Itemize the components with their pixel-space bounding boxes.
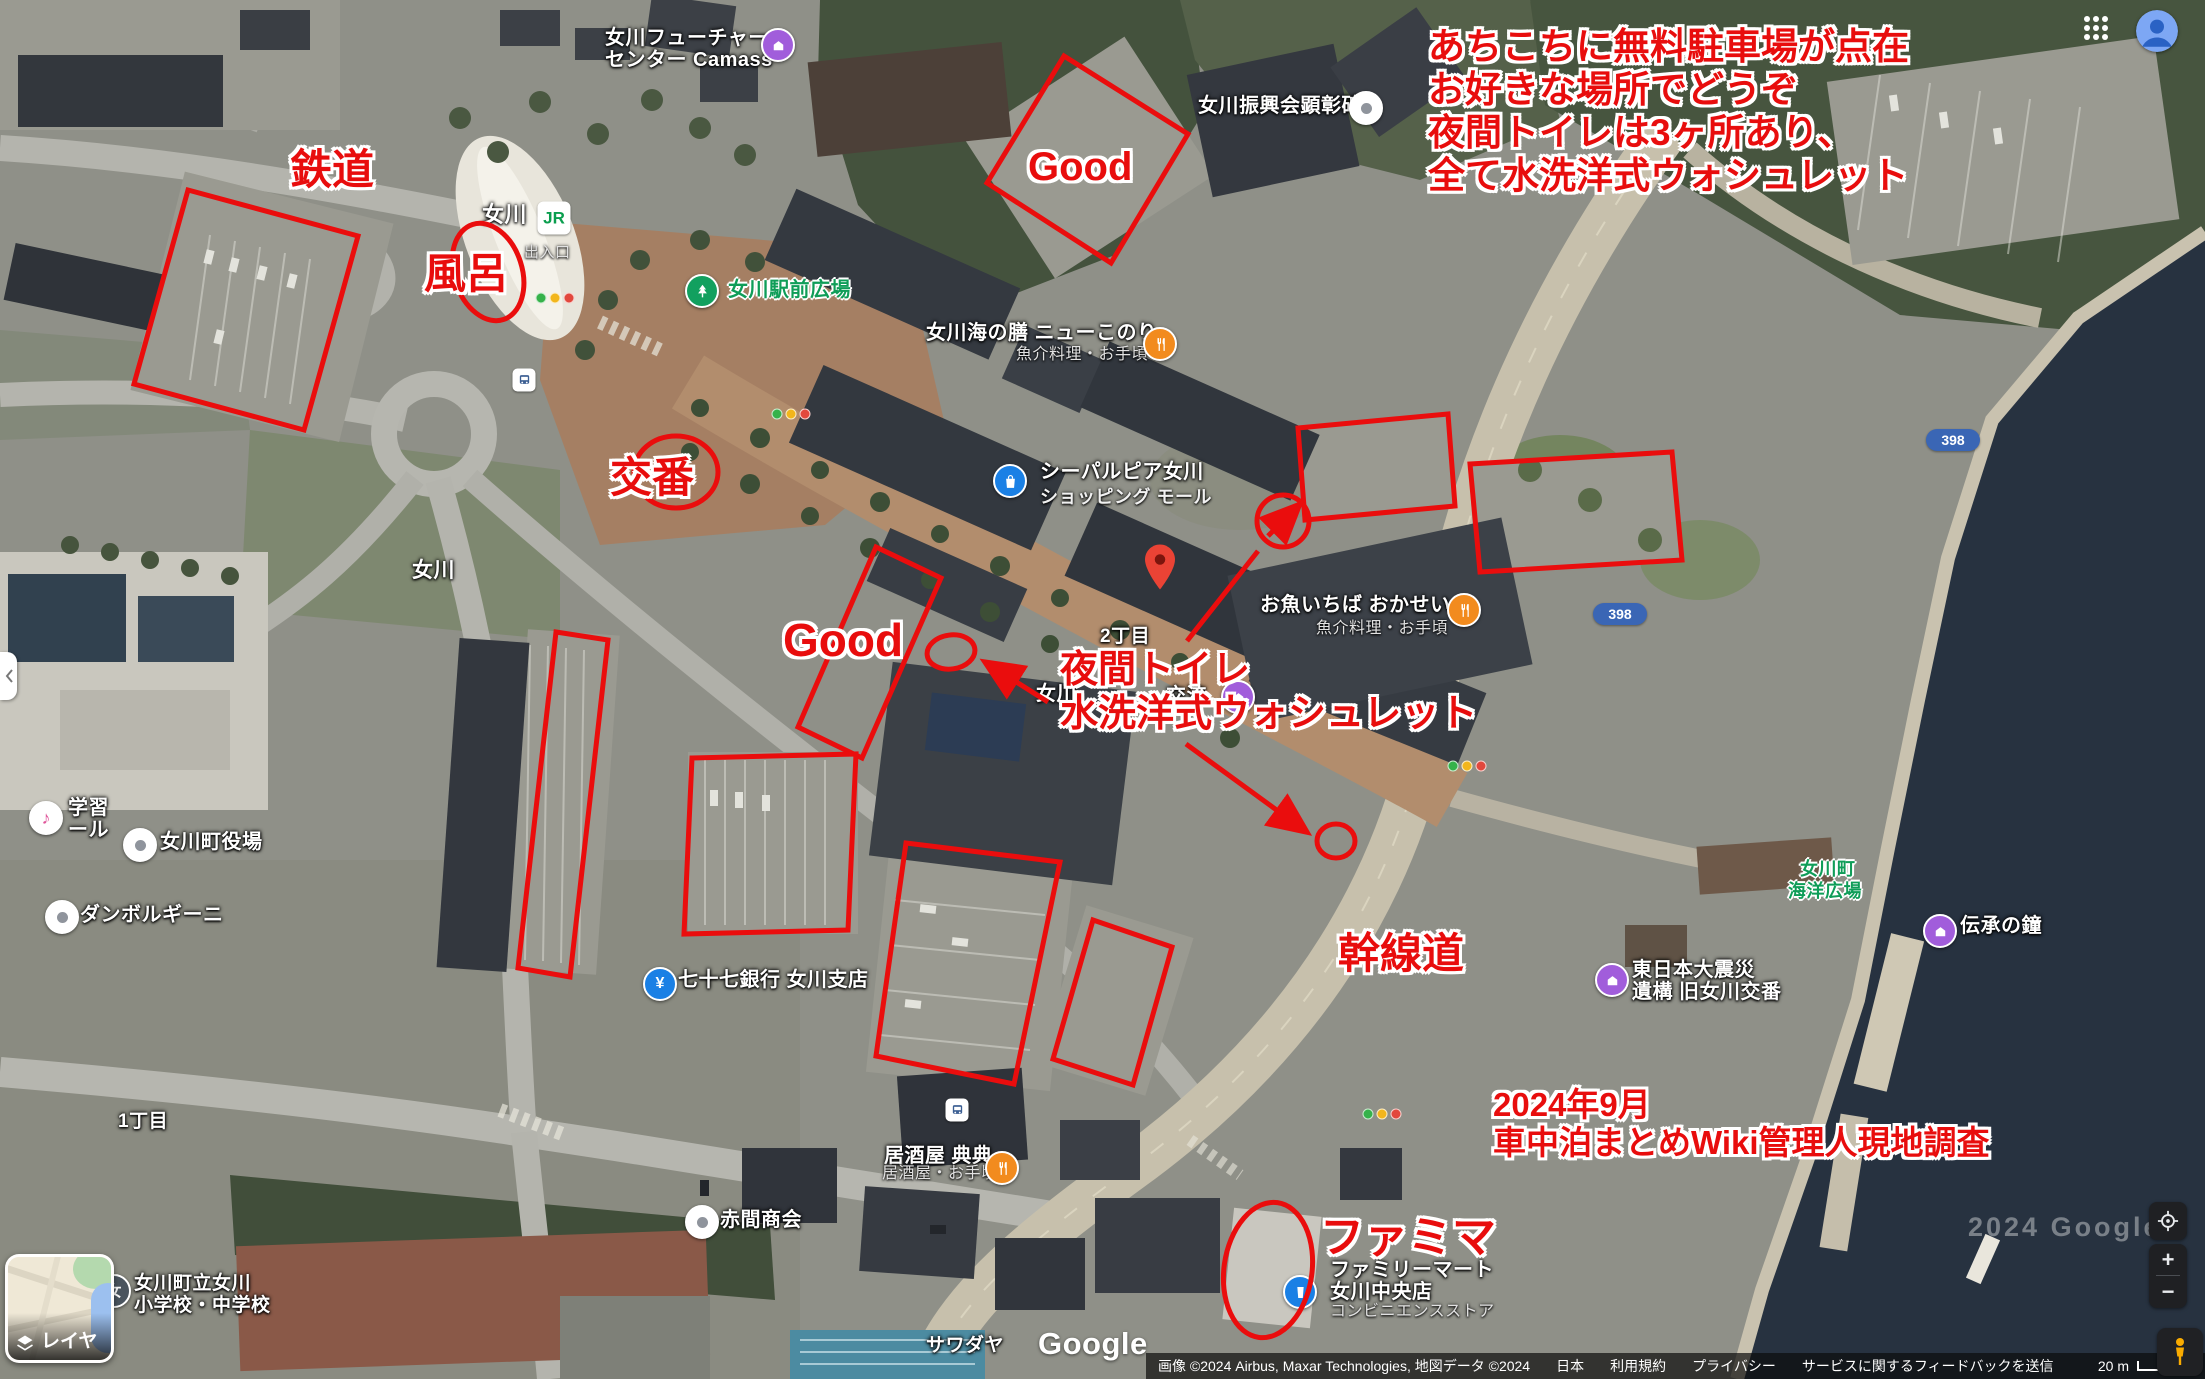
layers-icon	[15, 1333, 35, 1353]
attribution-link-privacy[interactable]: プライバシー	[1692, 1356, 1776, 1376]
red-notes-layer: あちこちに無料駐車場が点在 お好きな場所でどうぞ 夜間トイレは3ヶ所あり、 全て…	[0, 0, 2205, 1379]
side-panel-toggle[interactable]	[0, 652, 17, 700]
account-avatar[interactable]	[2136, 10, 2178, 52]
note-night-toilet: 夜間トイレ 水洗洋式ウォシュレット	[1060, 648, 1477, 736]
pegman-icon	[2168, 1337, 2192, 1367]
note-parking-info: あちこちに無料駐車場が点在 お好きな場所でどうぞ 夜間トイレは3ヶ所あり、 全て…	[1428, 26, 1909, 198]
note-good-1: Good	[1028, 144, 1132, 190]
map-canvas[interactable]: 女川フューチャーセンター Camass女川振興会顕彰碑女川出入口女川駅前広場女川…	[0, 0, 2205, 1379]
attribution-link-terms[interactable]: 利用規約	[1610, 1356, 1666, 1376]
imagery-credit: 画像 ©2024 Airbus, Maxar Technologies, 地図デ…	[1158, 1356, 1530, 1376]
google-logo: Google	[1038, 1326, 1148, 1362]
note-kansendo: 幹線道	[1338, 930, 1464, 979]
note-furo: 風呂	[424, 250, 508, 299]
note-survey: 2024年9月 車中泊まとめWiki管理人現地調査	[1493, 1086, 1990, 1163]
pegman-button[interactable]	[2157, 1328, 2203, 1376]
layers-button[interactable]: レイヤ	[5, 1254, 114, 1363]
layers-label: レイヤ	[41, 1326, 97, 1353]
attribution-bar: 画像 ©2024 Airbus, Maxar Technologies, 地図デ…	[1146, 1353, 2205, 1379]
chevron-left-icon	[4, 668, 14, 684]
note-tetsudo: 鉄道	[290, 146, 374, 195]
zoom-out-button[interactable]: −	[2149, 1276, 2187, 1307]
note-famima: ファミマ	[1320, 1212, 1496, 1263]
note-koban: 交番	[610, 454, 694, 503]
crosshair-icon	[2157, 1210, 2179, 1232]
note-good-2: Good	[783, 614, 903, 667]
zoom-in-button[interactable]: +	[2149, 1244, 2187, 1275]
attribution-link-country[interactable]: 日本	[1556, 1356, 1584, 1376]
my-location-button[interactable]	[2149, 1202, 2187, 1240]
apps-grid-icon[interactable]	[2080, 12, 2112, 44]
scale-text: 20 m	[2098, 1358, 2129, 1374]
zoom-control: + −	[2149, 1244, 2187, 1308]
attribution-link-feedback[interactable]: サービスに関するフィードバックを送信	[1802, 1356, 2054, 1376]
